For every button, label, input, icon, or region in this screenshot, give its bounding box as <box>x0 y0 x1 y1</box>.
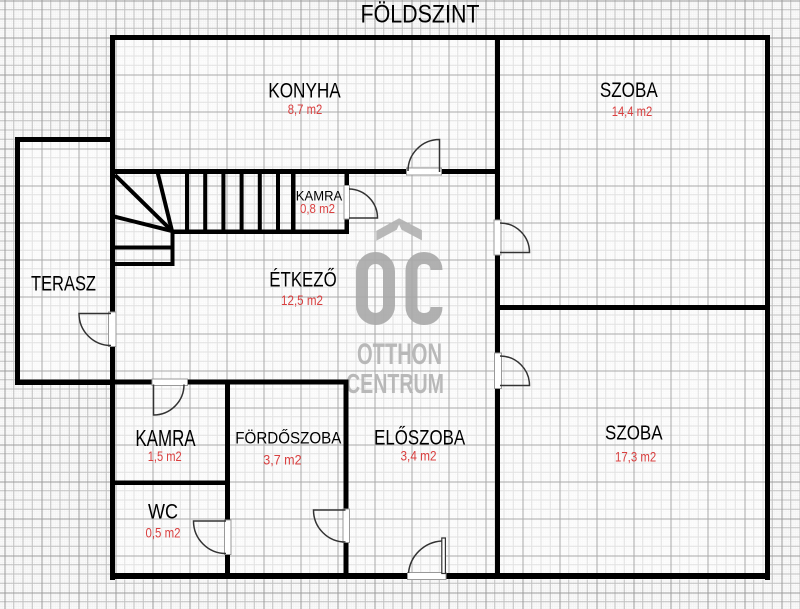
svg-text:KAMRA: KAMRA <box>135 425 196 451</box>
svg-text:CENTRUM: CENTRUM <box>346 368 444 399</box>
svg-text:SZOBA: SZOBA <box>600 79 658 102</box>
svg-text:12,5 m2: 12,5 m2 <box>281 292 323 308</box>
svg-text:FÖRDŐSZOBA: FÖRDŐSZOBA <box>235 428 342 447</box>
svg-text:ÉTKEZŐ: ÉTKEZŐ <box>269 269 336 292</box>
svg-text:KONYHA: KONYHA <box>268 80 341 103</box>
svg-text:1,5 m2: 1,5 m2 <box>148 449 182 464</box>
svg-text:TERASZ: TERASZ <box>31 272 96 295</box>
svg-text:WC: WC <box>148 501 178 524</box>
svg-text:SZOBA: SZOBA <box>605 422 663 444</box>
svg-text:ELŐSZOBA: ELŐSZOBA <box>374 425 466 450</box>
svg-text:14,4 m2: 14,4 m2 <box>612 103 653 119</box>
svg-text:FÖLDSZINT: FÖLDSZINT <box>361 1 480 29</box>
svg-text:17,3 m2: 17,3 m2 <box>615 448 656 464</box>
svg-text:0,5 m2: 0,5 m2 <box>146 525 181 541</box>
svg-text:0,8 m2: 0,8 m2 <box>300 201 335 216</box>
svg-text:3,4 m2: 3,4 m2 <box>401 448 437 464</box>
svg-text:OTTHON: OTTHON <box>357 338 442 371</box>
svg-text:8,7 m2: 8,7 m2 <box>288 101 323 117</box>
svg-text:3,7 m2: 3,7 m2 <box>263 452 301 468</box>
